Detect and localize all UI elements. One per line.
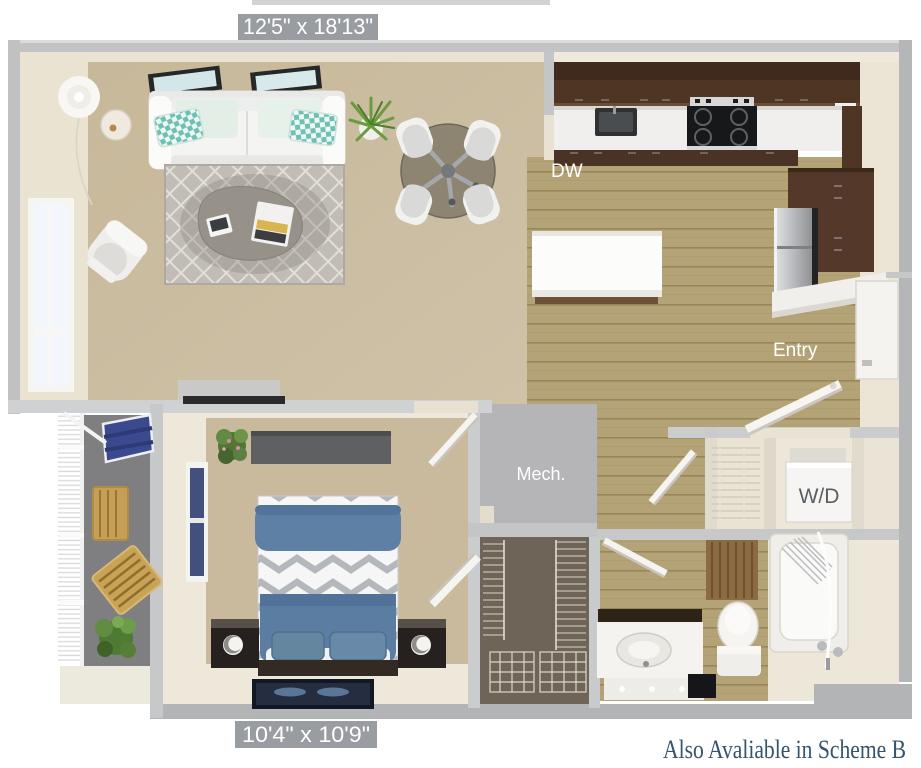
svg-text:Also Avaliable in Scheme B: Also Avaliable in Scheme B: [663, 735, 906, 764]
svg-text:10'4" x 10'9": 10'4" x 10'9": [242, 722, 370, 747]
svg-text:DW: DW: [551, 161, 583, 182]
svg-text:12'5" x 18'13": 12'5" x 18'13": [243, 14, 373, 39]
svg-text:Entry: Entry: [773, 340, 818, 361]
svg-text:W/D: W/D: [799, 485, 840, 508]
svg-text:Mech.: Mech.: [516, 464, 565, 484]
